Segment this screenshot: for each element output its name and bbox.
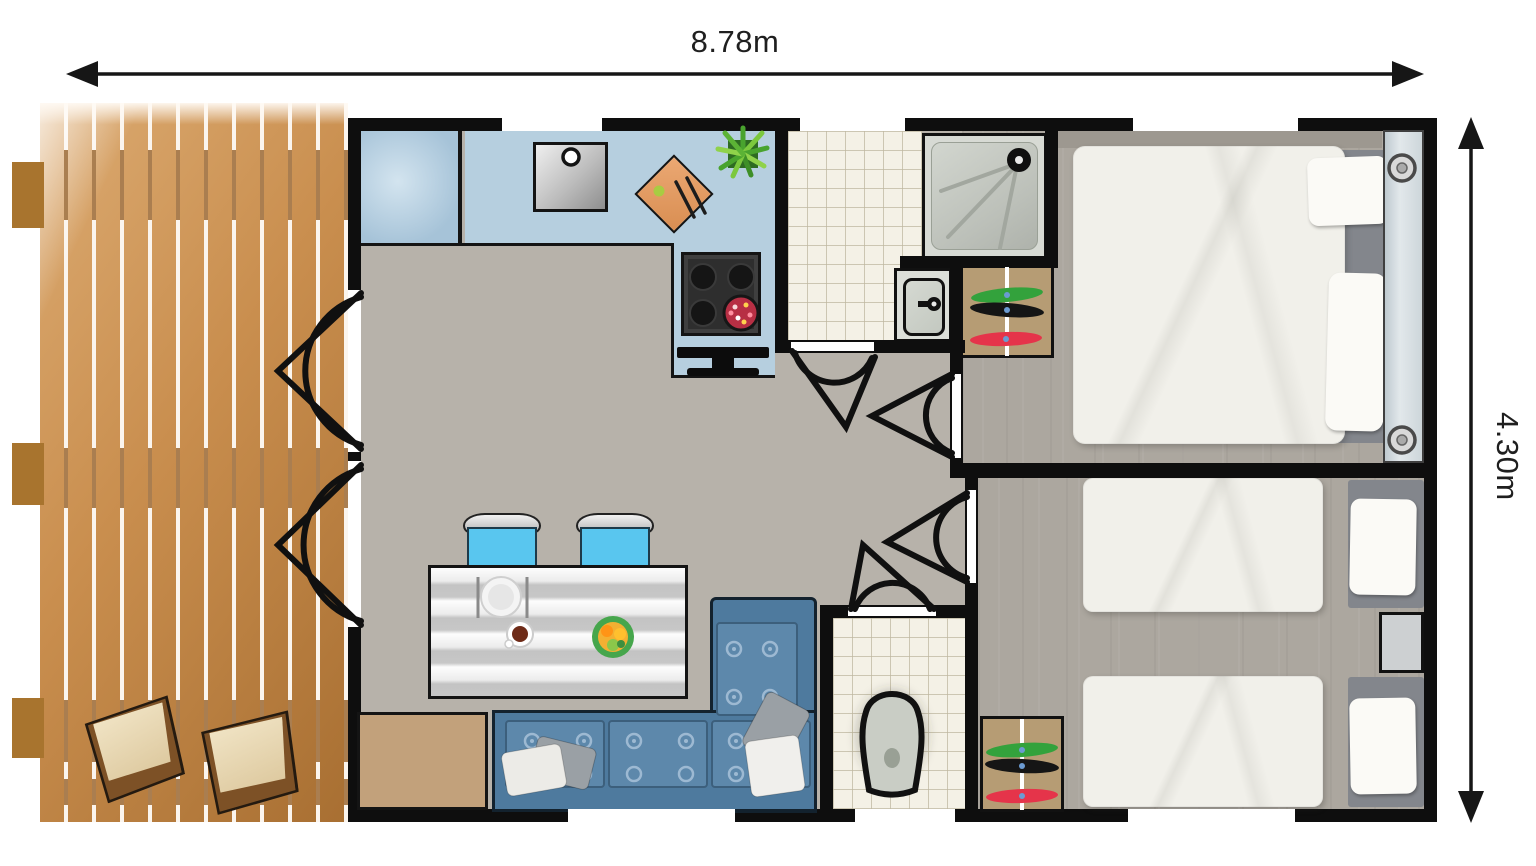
nightstand — [1379, 612, 1424, 673]
deck-joist-end — [12, 162, 44, 228]
single-bed-duvet — [1083, 478, 1323, 612]
wardrobe-bathroom — [960, 263, 1054, 358]
french-door-glass — [348, 461, 361, 627]
wall-wc-west — [820, 605, 833, 822]
window — [502, 118, 602, 131]
wall-shower-bedroom-1 — [1045, 131, 1058, 268]
pillow — [1349, 697, 1417, 794]
window — [1133, 118, 1298, 131]
sofa-cushion — [608, 720, 708, 788]
height-dimension-arrow — [1458, 117, 1484, 823]
dining-table — [428, 565, 688, 699]
bedroom-1-door-leaf — [952, 374, 961, 458]
sofa-cushion — [716, 622, 798, 716]
deck-beam — [40, 448, 348, 508]
pillow — [1325, 272, 1387, 431]
pillow — [1307, 156, 1389, 227]
deck-joist-end — [12, 443, 44, 505]
sofa-cushion — [505, 720, 605, 788]
storage-cabinet — [357, 712, 488, 810]
deck-beam — [40, 150, 348, 220]
wall-kitchen-bathroom — [775, 131, 788, 352]
washbasin — [894, 268, 952, 342]
bedroom-2-door-leaf — [967, 490, 976, 583]
stove-surface — [688, 259, 754, 329]
deck-beam — [40, 700, 348, 762]
washbasin-bowl — [903, 278, 945, 336]
deck-joist-end — [12, 698, 44, 758]
window — [800, 118, 905, 131]
kitchen-cabinet — [361, 131, 462, 243]
wc-floor — [833, 618, 965, 809]
tv-stand-base — [687, 368, 759, 376]
deck-beam — [40, 779, 348, 805]
wall-basin-wardrobe — [950, 258, 963, 353]
window — [855, 809, 955, 822]
sofa-cushion — [711, 720, 811, 788]
counter-edge — [465, 243, 674, 246]
width-dimension-arrow — [66, 61, 1424, 87]
bathroom-door-leaf — [791, 342, 874, 351]
wall-shower-south — [900, 256, 1058, 268]
window — [568, 809, 735, 822]
wall-between-bedrooms — [950, 463, 1437, 478]
width-dimension-label: 8.78m — [655, 24, 815, 60]
pillow — [1349, 498, 1417, 595]
kitchen-countertop — [465, 131, 775, 243]
french-door-glass — [348, 290, 361, 452]
height-dimension-label: 4.30m — [1489, 412, 1525, 532]
bed-headboard-panel — [1383, 130, 1424, 463]
counter-edge — [671, 243, 674, 378]
kitchen-sink — [533, 142, 608, 212]
window — [1128, 809, 1295, 822]
counter-edge — [361, 243, 465, 246]
shower-tray — [931, 142, 1038, 250]
double-bed-duvet — [1073, 146, 1345, 444]
single-bed-duvet — [1083, 676, 1323, 807]
wardrobe-bedroom-2 — [980, 716, 1064, 812]
stove — [681, 252, 761, 336]
shower — [922, 133, 1047, 259]
wc-door-leaf — [848, 607, 936, 616]
terrace-deck — [40, 103, 348, 822]
floor-plan: 8.78m 4.30m — [0, 0, 1536, 866]
